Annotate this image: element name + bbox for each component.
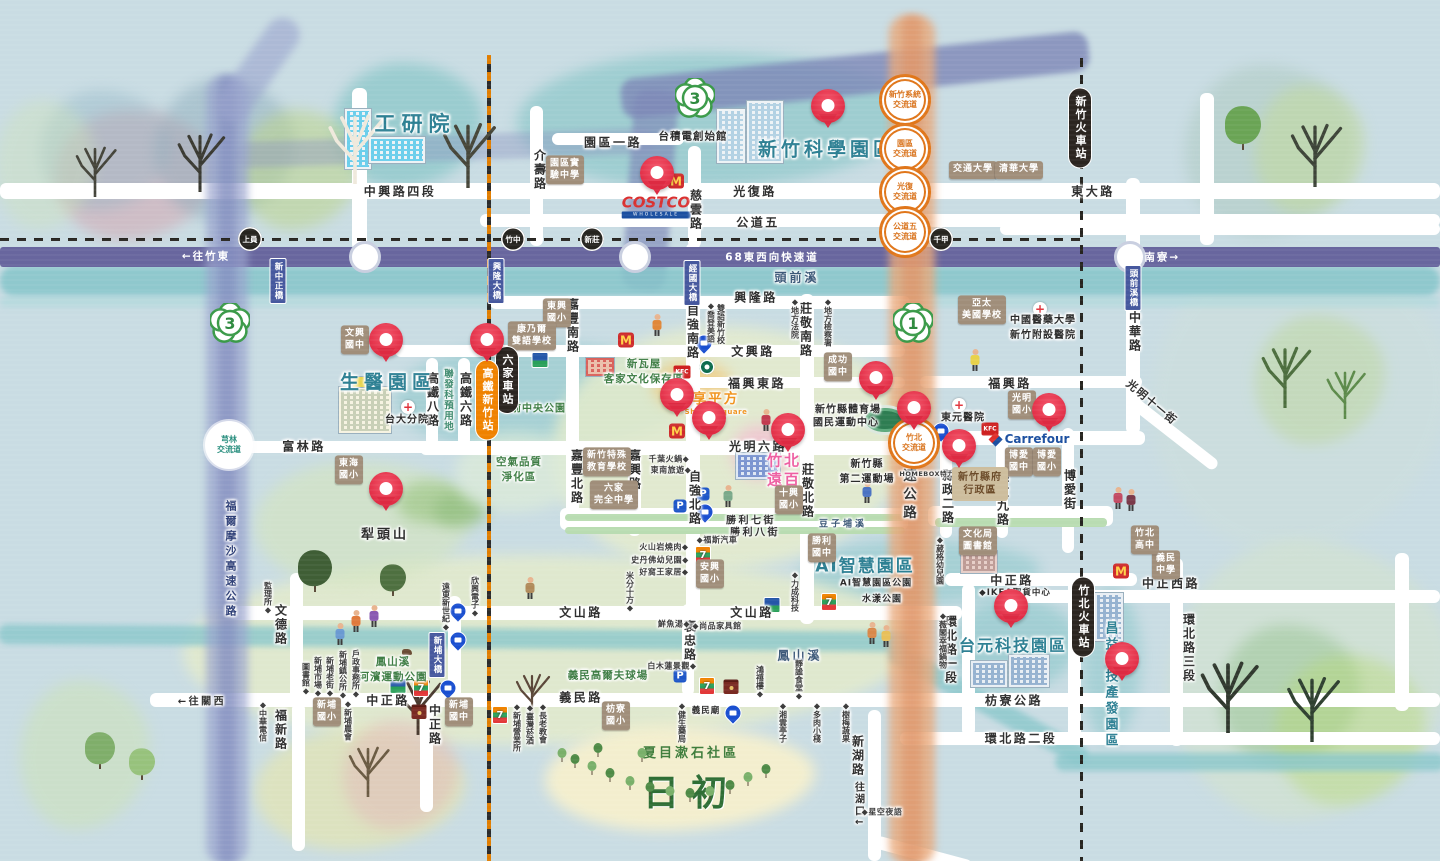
poi-small-label: ◆臺灣菸酒 xyxy=(525,704,536,745)
poi-small-label: 監理所◆ xyxy=(263,582,274,615)
location-pin xyxy=(942,429,976,463)
tree-illustration xyxy=(1225,106,1261,144)
road-label: 文興路 xyxy=(731,343,775,360)
road-label: 環北路三段 xyxy=(1181,613,1198,683)
tree-illustration xyxy=(646,782,655,796)
school-label: 亞太美國學校 xyxy=(958,295,1006,324)
svg-text:3: 3 xyxy=(689,89,700,108)
location-pin xyxy=(1032,393,1066,427)
location-pin xyxy=(994,589,1028,623)
poi-small-label: 千葉火鍋◆ xyxy=(649,454,690,465)
road xyxy=(1395,553,1409,711)
highway-label: 福爾摩沙高速公路 xyxy=(222,500,238,620)
road xyxy=(1200,93,1214,245)
poi-small-label: 好窩王家居◆ xyxy=(639,567,688,578)
tree-illustration xyxy=(726,780,735,794)
rail-station: 竹中 xyxy=(501,227,525,251)
road-label: 文山路 xyxy=(559,604,603,621)
location-pin xyxy=(369,472,403,506)
pedestrian-illustration xyxy=(352,610,361,632)
poi-label: 中國醫藥大學新竹附設醫院 xyxy=(1010,311,1076,341)
route-shield: 3 xyxy=(675,78,715,122)
road-label: 環北路二段 xyxy=(985,730,1058,747)
location-pin xyxy=(692,401,726,435)
location-pin xyxy=(1105,642,1139,676)
tree-illustration xyxy=(85,732,115,764)
road-label: 中興路四段 xyxy=(364,183,437,200)
school-label: 枋寮國小 xyxy=(602,701,630,730)
tree-illustration xyxy=(298,550,332,586)
rail-station: 高鐵新竹站 xyxy=(475,360,499,441)
poi-small-label: ◆星空夜語 xyxy=(862,807,903,818)
rail-station: 竹北火車站 xyxy=(1071,577,1095,658)
river-stroke xyxy=(1055,753,1440,771)
temple-icon xyxy=(724,682,739,694)
poi-label: 水漾公園 xyxy=(862,592,902,605)
seven-eleven-icon: 7 xyxy=(699,677,715,695)
pedestrian-illustration xyxy=(724,485,733,507)
temple-icon xyxy=(412,707,427,719)
district-label: 新竹科學園區 xyxy=(758,135,896,162)
road-label: 義民路 xyxy=(559,689,603,706)
tree-illustration xyxy=(744,772,753,786)
bridge-label: 新埔大橋 xyxy=(429,632,446,678)
location-pin xyxy=(640,156,674,190)
poi-small-label: ◆地方法院 xyxy=(790,298,801,339)
tree-illustration xyxy=(686,788,695,802)
poi-small-label: 鴻禧樓◆ xyxy=(755,666,766,699)
tree-illustration xyxy=(594,743,603,757)
poi-label: 新竹縣第二運動場 xyxy=(840,455,895,485)
river-label: 頭前溪 xyxy=(774,269,819,286)
location-pin xyxy=(660,378,694,412)
svg-text:3: 3 xyxy=(224,314,235,333)
road-label: 往湖口↓ xyxy=(851,782,866,828)
poi-label: 台大分院 xyxy=(385,411,429,426)
poi-small-label: ◆樹梅蔬果 xyxy=(841,702,852,743)
tree-illustration xyxy=(129,748,155,775)
school-label: 新竹特殊教育學校 xyxy=(583,447,631,476)
road-label: ←往關西 xyxy=(178,693,226,708)
tree-illustration xyxy=(626,776,635,790)
familymart-icon xyxy=(532,352,549,368)
poi-small-label: ◆福斯汽車 xyxy=(697,535,738,546)
poi-small-label: 新埔鎮公所◆ xyxy=(338,651,349,700)
road-label: 公道五 xyxy=(736,214,780,231)
bridge-label: 興隆大橋 xyxy=(488,258,505,304)
road-label: 富林路 xyxy=(282,438,326,455)
tree-illustration xyxy=(344,742,392,801)
road-label: 博愛街 xyxy=(1062,469,1079,511)
svg-text:1: 1 xyxy=(907,314,918,333)
tree-illustration xyxy=(606,768,615,782)
tree-illustration xyxy=(1285,118,1345,191)
location-pin xyxy=(897,391,931,425)
tree-illustration xyxy=(1322,366,1368,423)
pedestrian-illustration xyxy=(336,623,345,645)
poi-small-label: 米分十方◆ xyxy=(625,572,636,613)
road-label: 中正路 xyxy=(427,704,444,746)
road-label: 自強南路 xyxy=(685,304,702,360)
poi-small-label: 東南旅遊◆ xyxy=(651,465,692,476)
road-label: 福新路 xyxy=(273,709,290,751)
pedestrian-illustration xyxy=(1127,489,1136,511)
road-label: 園區一路 xyxy=(584,134,642,151)
rail-station: 新竹火車站 xyxy=(1068,88,1092,169)
railway-track xyxy=(1080,58,1083,861)
road-label: 文德路 xyxy=(273,604,290,646)
school-label: 成功國中 xyxy=(824,352,852,381)
road-label: 光復路 xyxy=(733,183,777,200)
poi-label: 東元醫院 xyxy=(941,409,985,424)
poi-small-label: 靜謐食堂◆ xyxy=(794,660,805,701)
school-label: 博愛國中 xyxy=(1005,447,1033,476)
poi-small-label: ◆尚品家具館 xyxy=(692,621,741,632)
location-pin xyxy=(859,361,893,395)
pedestrian-illustration xyxy=(526,577,535,599)
poi-small-label: 火山岩燒肉◆ xyxy=(639,542,688,553)
road-label: 福興路 xyxy=(988,375,1032,392)
pedestrian-illustration xyxy=(370,605,379,627)
poi-small-label: ◆湘雲亭子 xyxy=(778,702,789,743)
poi-small-label: ◆長老教會 xyxy=(538,703,549,744)
poi-label: 台積電創始館 xyxy=(659,129,728,144)
rail-station: 千甲 xyxy=(929,227,953,251)
district-label: 工研院 xyxy=(375,108,456,138)
school-label: 園區實驗中學 xyxy=(546,155,584,184)
school-label: 博愛國小 xyxy=(1033,447,1061,476)
school-label: 清華大學 xyxy=(995,161,1043,179)
poi-small-label: 遠東新世紀◆ xyxy=(441,583,452,632)
route-shield: 1 xyxy=(893,303,933,347)
poi-label: 義民廟 xyxy=(692,704,721,716)
road-label: 興隆路 xyxy=(734,289,778,306)
parking-icon: P xyxy=(674,500,687,513)
poi-small-label: 圖書館◆ xyxy=(301,663,312,696)
road xyxy=(945,573,1137,586)
tree-illustration xyxy=(666,786,675,800)
road-label: 慈雲路 xyxy=(688,189,705,231)
mcdonalds-icon: M xyxy=(618,333,634,348)
poi-small-label: ◆葳格幼兒園 xyxy=(935,536,946,585)
interchange-badge: 芎林交流道 xyxy=(205,421,253,469)
road-label: 東大路 xyxy=(1071,183,1115,200)
interchange-badge: 公道五交流道 xyxy=(879,206,931,258)
poi-small-label: 史丹佛幼兒園◆ xyxy=(631,555,689,566)
school-label: 竹北高中 xyxy=(1131,525,1159,554)
school-label: 文化局圖書館 xyxy=(959,526,997,555)
road-label: 中正路 xyxy=(366,692,410,709)
poi-small-label: ◆新埔營業所 xyxy=(512,703,523,752)
pedestrian-illustration xyxy=(882,625,891,647)
poi-label: AI智慧園區公園 xyxy=(840,576,912,589)
bridge-label: 新中正橋 xyxy=(270,258,287,304)
district-label: 生醫園區 xyxy=(340,368,436,395)
school-label: 交通大學 xyxy=(949,161,997,179)
tree-illustration xyxy=(571,754,580,768)
poi-small-label: 戶政事務所◆ xyxy=(351,650,362,699)
tree-illustration xyxy=(706,786,715,800)
seven-eleven-icon: 7 xyxy=(492,706,508,724)
school-label: 安興國小 xyxy=(696,559,724,588)
poi-small-label: ◆健生藥局 xyxy=(677,702,688,743)
tree-illustration xyxy=(1256,341,1314,412)
pedestrian-illustration xyxy=(653,314,662,336)
park-label: 義民高爾夫球場 xyxy=(568,668,649,683)
school-label: 新埔國中 xyxy=(445,697,473,726)
poi-label: 國民運動中心 xyxy=(813,414,879,429)
poi-small-label: ◆多肉小棧 xyxy=(812,702,823,743)
tree-illustration xyxy=(588,761,597,775)
park-label: 鳳山溪河濱運動公園 xyxy=(359,654,428,684)
school-label: 六家完全中學 xyxy=(590,480,638,509)
expressway-label: 往南寮→ xyxy=(1132,250,1180,265)
road xyxy=(235,441,490,453)
tree-illustration xyxy=(762,764,771,778)
location-pin xyxy=(811,89,845,123)
tree-illustration xyxy=(172,128,228,196)
poi-small-label: ◆地方檢察署 xyxy=(823,298,834,347)
poi-small-label: ◆力成科技 xyxy=(790,571,801,612)
school-label: 文興國中 xyxy=(341,325,369,354)
starbucks-icon xyxy=(700,360,715,375)
location-pin xyxy=(470,323,504,357)
pedestrian-illustration xyxy=(971,349,980,371)
poi-small-label: 白木蓮景觀◆ xyxy=(647,661,696,672)
school-label: 康乃爾雙語學校 xyxy=(508,321,556,350)
road-label: 新湖路 xyxy=(850,735,867,777)
mcdonalds-icon: M xyxy=(1113,564,1129,579)
seven-eleven-icon: 7 xyxy=(821,593,837,611)
poi-small-label: ◆新埔農會 xyxy=(343,700,354,741)
road xyxy=(1000,223,1440,235)
school-label: 勝利國中 xyxy=(808,533,836,562)
road-label: 枋寮公路 xyxy=(985,692,1043,709)
bridge-label: 頭前溪橋 xyxy=(1125,265,1142,311)
school-label: 新埔國小 xyxy=(313,697,341,726)
tree-illustration xyxy=(638,748,647,762)
school-label: 義民中學 xyxy=(1152,550,1180,579)
location-pin xyxy=(771,413,805,447)
bridge-label: 經國大橋 xyxy=(684,260,701,306)
building-illustration xyxy=(1008,654,1050,688)
map-canvas: 夏目漱石社區 日初 中興路四段園區一路光復路公道五東大路興隆路文興路福興東路福興… xyxy=(0,0,1440,861)
pedestrian-illustration xyxy=(868,622,877,644)
pedestrian-illustration xyxy=(762,409,771,431)
rail-station: 上員 xyxy=(238,227,262,251)
road-label: 自強北路 xyxy=(687,470,704,526)
expressway-junction xyxy=(619,241,651,273)
road-label: 高鐵六路 xyxy=(458,372,475,428)
poi-small-label: 欣興電子◆ xyxy=(470,577,481,618)
poi-small-label: 新埔市場◆ xyxy=(313,657,324,698)
location-pin xyxy=(369,323,403,357)
road xyxy=(292,703,305,851)
interchange-badge: 新竹系統交流道 xyxy=(879,74,931,126)
river-label: 豆子埔溪 xyxy=(819,517,867,530)
school-label: 東海國小 xyxy=(335,455,363,484)
pedestrian-illustration xyxy=(1114,487,1123,509)
expressway-label: ←往竹東 xyxy=(182,249,230,264)
poi-small-label: 鮮魚湯◆ xyxy=(658,619,690,630)
reserved-land-label: 聯發科預用地 xyxy=(440,369,454,432)
park-label: 空氣品質淨化區 xyxy=(496,454,542,484)
poi-label: 犁頭山 xyxy=(361,524,409,543)
poi-small-label: 雙語新竹校 xyxy=(716,304,727,344)
route-shield: 3 xyxy=(210,303,250,347)
poi-small-label: ◆中華電信 xyxy=(258,701,269,742)
tree-illustration xyxy=(558,748,567,762)
tree-illustration xyxy=(1194,655,1262,737)
school-label: 十興國小 xyxy=(775,485,803,514)
poi-small-label: 新埔老街◆ xyxy=(325,657,336,698)
expressway-junction xyxy=(349,241,381,273)
road-label: 文山路 xyxy=(730,604,774,621)
road-label: 中華路 xyxy=(1127,311,1144,353)
rail-station: 新莊 xyxy=(580,227,604,251)
poi-small-label: ◆薇閣幸福鍋物 xyxy=(938,612,949,669)
tree-illustration xyxy=(1281,671,1343,746)
building-illustration xyxy=(970,660,1008,688)
tree-illustration xyxy=(71,142,119,201)
expressway-label: 68東西向快速道 xyxy=(725,250,819,265)
